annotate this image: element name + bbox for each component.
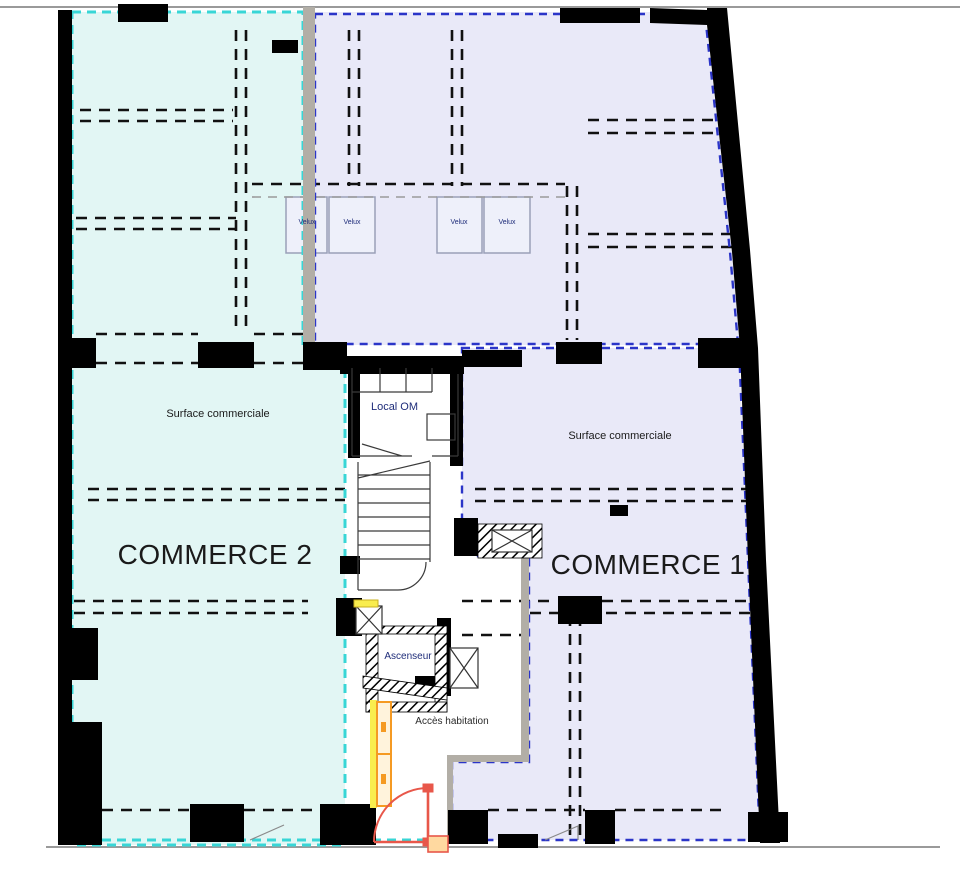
wall-left bbox=[58, 10, 72, 845]
wall-pillar bbox=[558, 596, 602, 624]
yellow-marker bbox=[354, 600, 378, 607]
wall-bottom-pillar bbox=[190, 804, 244, 842]
door-jamb bbox=[423, 784, 433, 792]
wall-tick bbox=[272, 40, 298, 53]
wall-core-right bbox=[450, 366, 463, 466]
wall-top-right bbox=[650, 8, 707, 25]
wall-core-right bbox=[454, 518, 478, 556]
elevator-wall bbox=[366, 626, 378, 712]
wall-core-left bbox=[340, 556, 360, 574]
upper-floor-zone bbox=[303, 12, 740, 345]
wall-bottom-pillar bbox=[448, 810, 488, 844]
velux-box bbox=[484, 197, 530, 253]
wall-top-left bbox=[118, 4, 168, 22]
wall-pillar bbox=[58, 628, 98, 680]
entrance-threshold bbox=[428, 836, 448, 852]
wall-bottom-pillar bbox=[748, 812, 788, 842]
wall-bottom-pillar bbox=[320, 804, 376, 845]
wall-mid-band bbox=[198, 342, 254, 368]
velux-box bbox=[329, 197, 375, 253]
gray-wall-core-right bbox=[521, 552, 529, 760]
riser-mark bbox=[381, 722, 386, 732]
local-om-room-lines bbox=[352, 368, 458, 456]
wall-bottom-pillar bbox=[585, 810, 615, 844]
gray-wall-entrance-top bbox=[447, 755, 529, 762]
wall-bottom-pillar bbox=[498, 834, 538, 848]
floor-plan-drawing bbox=[0, 0, 960, 874]
wall-pillar bbox=[556, 342, 602, 364]
wall-mid-band bbox=[462, 350, 522, 367]
floor-plan: COMMERCE 2 COMMERCE 1 Surface commercial… bbox=[0, 0, 960, 874]
commerce1-zone bbox=[452, 348, 760, 840]
wall-core-left bbox=[348, 366, 360, 458]
velux-box bbox=[437, 197, 482, 253]
wall-pillar bbox=[58, 338, 96, 368]
wall-top-mid bbox=[560, 8, 640, 23]
gray-wall-separator bbox=[303, 7, 315, 345]
yellow-strip bbox=[370, 700, 377, 808]
riser-mark bbox=[381, 774, 386, 784]
wall-pillar bbox=[698, 338, 750, 368]
staircase bbox=[358, 461, 430, 590]
wall-tick bbox=[610, 505, 628, 516]
wall-pillar bbox=[58, 722, 102, 845]
